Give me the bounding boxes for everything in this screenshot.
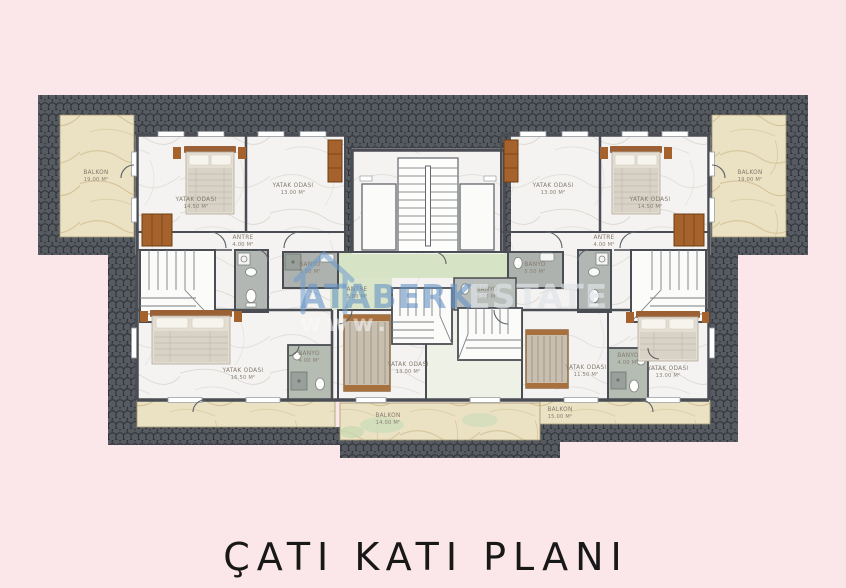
svg-text:13.00 M²: 13.00 M² (656, 373, 681, 379)
svg-text:14.00 M²: 14.00 M² (376, 420, 401, 426)
svg-text:4.00 M²: 4.00 M² (593, 242, 614, 248)
svg-text:16.50 M²: 16.50 M² (231, 375, 256, 381)
svg-text:YATAK ODASI: YATAK ODASI (565, 365, 607, 371)
room-label-balkon-left: BALKON19.00 M² (83, 170, 108, 183)
svg-text:BANYO: BANYO (617, 353, 639, 359)
svg-text:4.00 M²: 4.00 M² (617, 360, 638, 366)
stair-core (352, 148, 504, 254)
svg-text:13.00 M²: 13.00 M² (396, 369, 421, 375)
svg-text:14.50 M²: 14.50 M² (184, 204, 209, 210)
svg-text:4.00 M²: 4.00 M² (298, 358, 319, 364)
plan-title: ÇATI KATI PLANI (223, 535, 628, 579)
floor-plan-canvas: BALKON19.00 M² YATAK ODASI14.50 M² YATAK… (0, 0, 846, 588)
wardrobe (504, 140, 518, 182)
washer-icon (238, 253, 250, 265)
svg-text:15.00 M²: 15.00 M² (548, 414, 573, 420)
watermark-url: www. (300, 311, 391, 337)
sink-icon (246, 268, 257, 276)
svg-text:5.50 M²: 5.50 M² (524, 269, 545, 275)
svg-text:14.50 M²: 14.50 M² (638, 204, 663, 210)
svg-text:4.00 M²: 4.00 M² (232, 242, 253, 248)
room-label-banyo-bottom-left: BANYO4.00 M² (298, 351, 320, 364)
toilet-icon (246, 290, 256, 308)
room-label-antre-left: ANTRE4.00 M² (232, 235, 253, 248)
toilet-icon (316, 378, 325, 390)
svg-text:YATAK ODASI: YATAK ODASI (272, 183, 314, 189)
room-label-banyo-bottom-right: BANYO4.00 M² (617, 353, 639, 366)
room-label-balkon-bottom-right: BALKON15.00 M² (547, 407, 572, 420)
svg-text:ANTRE: ANTRE (593, 235, 614, 241)
room-label-balkon-right: BALKON19.00 M² (737, 170, 762, 183)
room-label-antre-right: ANTRE4.00 M² (593, 235, 614, 248)
floor-plan-page: BALKON19.00 M² YATAK ODASI14.50 M² YATAK… (0, 0, 846, 588)
shower-icon (611, 372, 626, 389)
wardrobe (674, 214, 704, 246)
svg-text:YATAK ODASI: YATAK ODASI (629, 197, 671, 203)
toilet-icon (630, 380, 639, 392)
washer-icon (596, 253, 608, 265)
svg-text:BALKON: BALKON (737, 170, 762, 176)
shower-icon (291, 372, 307, 390)
svg-text:11.50 M²: 11.50 M² (574, 372, 599, 378)
balcony-left (60, 115, 134, 237)
svg-text:YATAK ODASI: YATAK ODASI (647, 366, 689, 372)
wardrobe (328, 140, 342, 182)
svg-text:BALKON: BALKON (547, 407, 572, 413)
svg-text:19.00 M²: 19.00 M² (84, 177, 109, 183)
svg-text:13.00 M²: 13.00 M² (541, 190, 566, 196)
balcony-right (712, 115, 786, 237)
svg-text:YATAK ODASI: YATAK ODASI (387, 362, 429, 368)
watermark-brand-suffix: ESTATE (468, 277, 608, 316)
room-label-balkon-bottom-center: BALKON14.00 M² (375, 413, 400, 426)
room-label-banyo-right: BANYO5.50 M² (524, 262, 546, 275)
wardrobe (142, 214, 172, 246)
sink-icon (540, 253, 554, 261)
toilet-icon (514, 257, 522, 268)
canopy-bed (526, 330, 568, 388)
balcony-bottom-left (137, 400, 335, 427)
svg-text:BANYO: BANYO (298, 351, 320, 357)
svg-text:19.00 M²: 19.00 M² (738, 177, 763, 183)
svg-text:13.00 M²: 13.00 M² (281, 190, 306, 196)
svg-text:BALKON: BALKON (83, 170, 108, 176)
svg-text:YATAK ODASI: YATAK ODASI (175, 197, 217, 203)
svg-text:YATAK ODASI: YATAK ODASI (532, 183, 574, 189)
svg-text:BANYO: BANYO (524, 262, 546, 268)
svg-text:BALKON: BALKON (375, 413, 400, 419)
svg-text:ANTRE: ANTRE (232, 235, 253, 241)
bed (140, 310, 242, 364)
sink-icon (589, 268, 600, 276)
svg-text:YATAK ODASI: YATAK ODASI (222, 368, 264, 374)
